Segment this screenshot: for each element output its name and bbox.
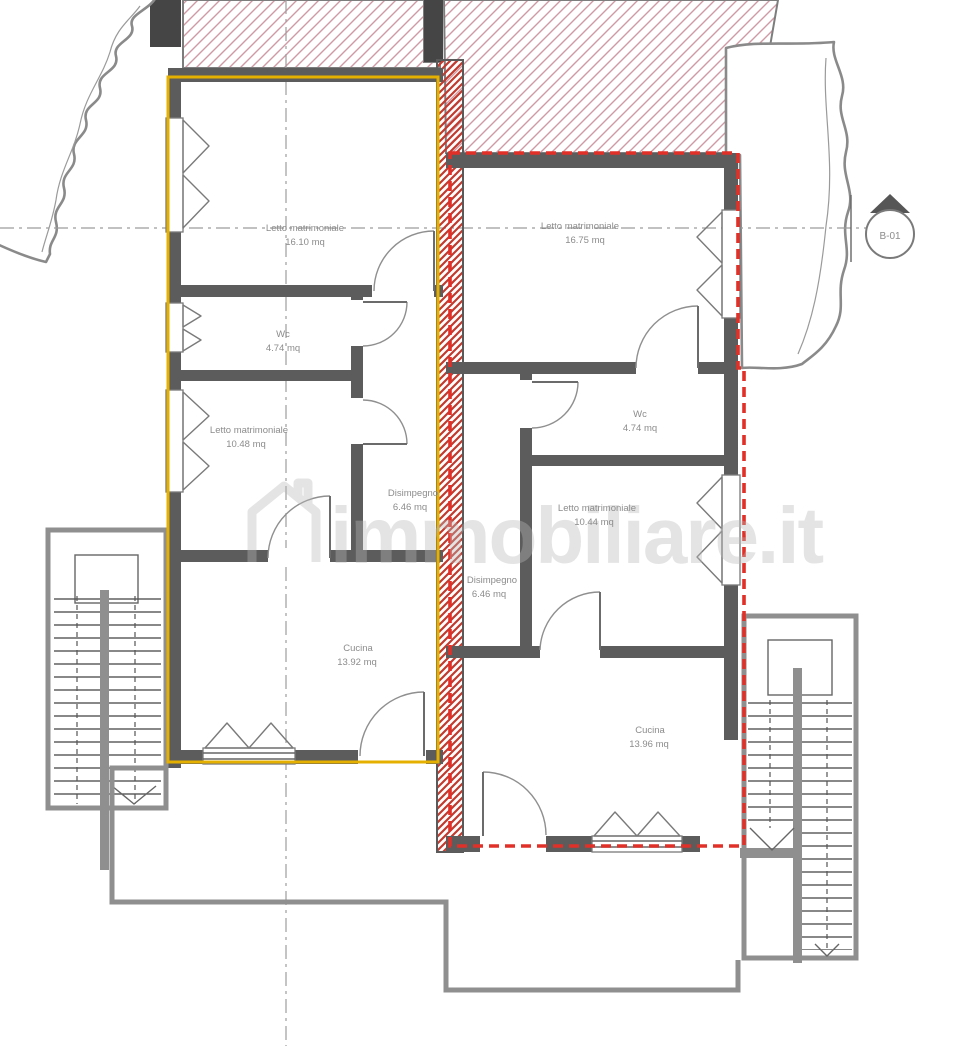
room-label-right-bedroom1: Letto matrimoniale [541, 221, 619, 232]
window-left-kitchen-icon [203, 723, 295, 764]
floor-plan-page: B-01 immobiliare.it Letto matrimoniale 1… [0, 0, 964, 1050]
window-left-wc-icon [166, 303, 201, 352]
door-left-kitchen-icon [268, 496, 330, 564]
floor-plan-svg: B-01 immobiliare.it Letto matrimoniale 1… [0, 0, 964, 1050]
window-left-bedroom2-icon [166, 390, 209, 492]
door-right-bedroom2-icon [540, 592, 600, 660]
room-area-right-wc: 4.74 mq [623, 423, 657, 434]
room-area-left-kitchen: 13.92 mq [337, 657, 377, 668]
terrace-outline [112, 768, 738, 990]
section-marker-label: B-01 [879, 231, 901, 242]
room-label-left-kitchen: Cucina [343, 643, 373, 654]
room-area-right-bedroom1: 16.75 mq [565, 235, 605, 246]
room-area-left-wc: 4.74 mq [266, 343, 300, 354]
room-label-right-wc: Wc [633, 409, 647, 420]
window-right-bedroom1-icon [697, 210, 740, 318]
door-right-entry-icon [480, 772, 546, 852]
room-area-left-bedroom1: 16.10 mq [285, 237, 325, 248]
staircase-right [700, 616, 856, 970]
watermark: immobiliare.it [252, 483, 823, 580]
door-right-bedroom1-icon [636, 306, 698, 376]
wall-stub-top-left [150, 0, 181, 47]
room-area-left-bedroom2: 10.48 mq [226, 439, 266, 450]
room-label-left-hallway: Disimpegno [388, 488, 438, 499]
room-label-left-bedroom2: Letto matrimoniale [210, 425, 288, 436]
section-marker: B-01 [851, 194, 914, 262]
room-area-right-hallway: 6.46 mq [472, 589, 506, 600]
door-left-entry-icon [358, 692, 426, 766]
left-unit-outline [168, 77, 438, 762]
window-left-bedroom1-icon [166, 118, 209, 232]
room-label-left-wc: Wc [276, 329, 290, 340]
room-label-right-kitchen: Cucina [635, 725, 665, 736]
door-right-wc-icon [518, 380, 578, 428]
door-left-bedroom1-icon [372, 231, 434, 299]
door-left-wc-icon [349, 300, 407, 346]
wall-stub-top-center [424, 0, 443, 62]
room-area-right-bedroom2: 10.44 mq [574, 517, 614, 528]
terrain-outline-right [726, 42, 850, 368]
room-label-right-hallway: Disimpegno [467, 575, 517, 586]
left-apartment-walls [168, 68, 443, 768]
terrain-outline-left [0, 0, 156, 262]
staircase-left [48, 530, 166, 870]
room-area-right-kitchen: 13.96 mq [629, 739, 669, 750]
room-label-left-bedroom1: Letto matrimoniale [266, 223, 344, 234]
room-label-right-bedroom2: Letto matrimoniale [558, 503, 636, 514]
room-area-left-hallway: 6.46 mq [393, 502, 427, 513]
door-left-bedroom2-icon [349, 398, 407, 444]
